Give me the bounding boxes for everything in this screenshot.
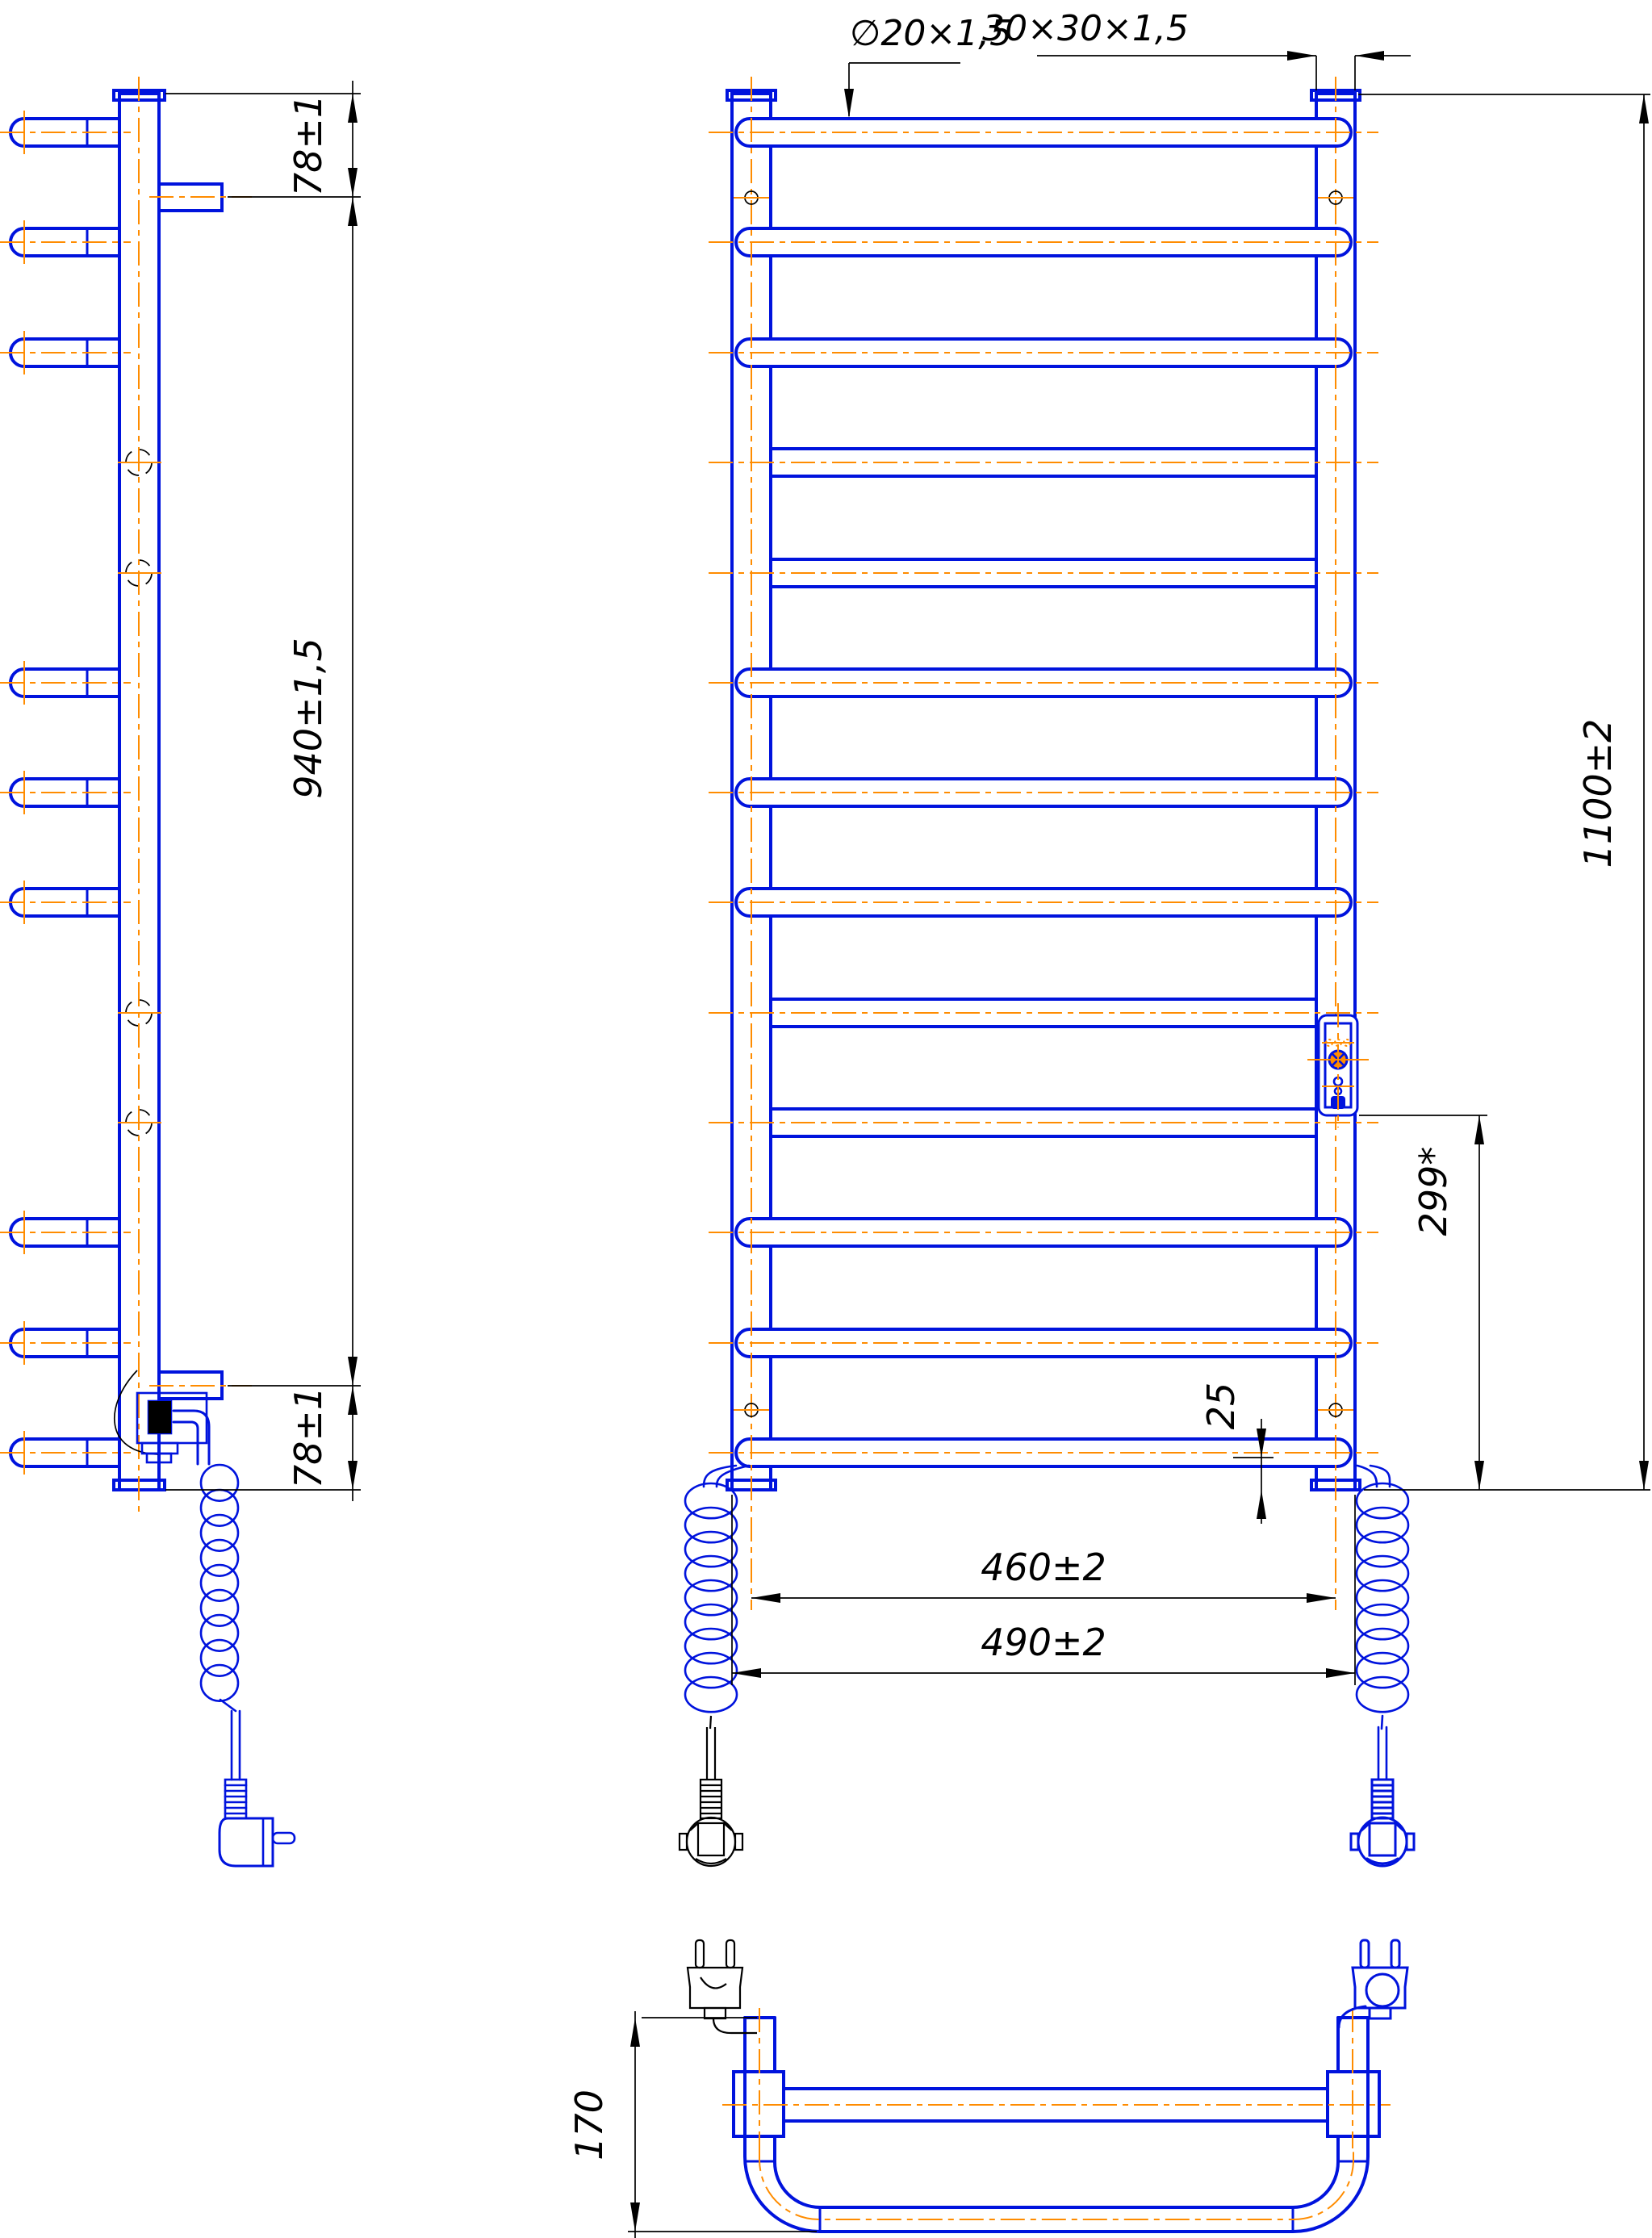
label-bracket-top-offset: 78±1 <box>286 94 330 196</box>
dimension-labels: ∅20×1,5 30×30×1,5 78±1 940±1,5 78±1 1100… <box>286 8 1620 2161</box>
bottom-view <box>688 1940 1407 2232</box>
label-overall-height: 1100±2 <box>1576 719 1620 868</box>
label-controller-offset: 299* <box>1412 1147 1455 1236</box>
side-view <box>0 77 295 1866</box>
label-bracket-span: 940±1,5 <box>286 638 330 799</box>
technical-drawing-canvas: ∅20×1,5 30×30×1,5 78±1 940±1,5 78±1 1100… <box>0 0 1652 2238</box>
label-bottom-offset: 25 <box>1199 1383 1243 1430</box>
dimension-lines <box>165 51 1650 2238</box>
drawing-sheet: ∅20×1,5 30×30×1,5 78±1 940±1,5 78±1 1100… <box>0 0 1652 2238</box>
label-post-profile: 30×30×1,5 <box>982 8 1189 49</box>
label-bracket-bottom-offset: 78±1 <box>286 1387 330 1488</box>
label-axis-width: 460±2 <box>981 1546 1106 1589</box>
label-overall-width: 490±2 <box>981 1621 1106 1664</box>
label-depth: 170 <box>567 2089 611 2161</box>
